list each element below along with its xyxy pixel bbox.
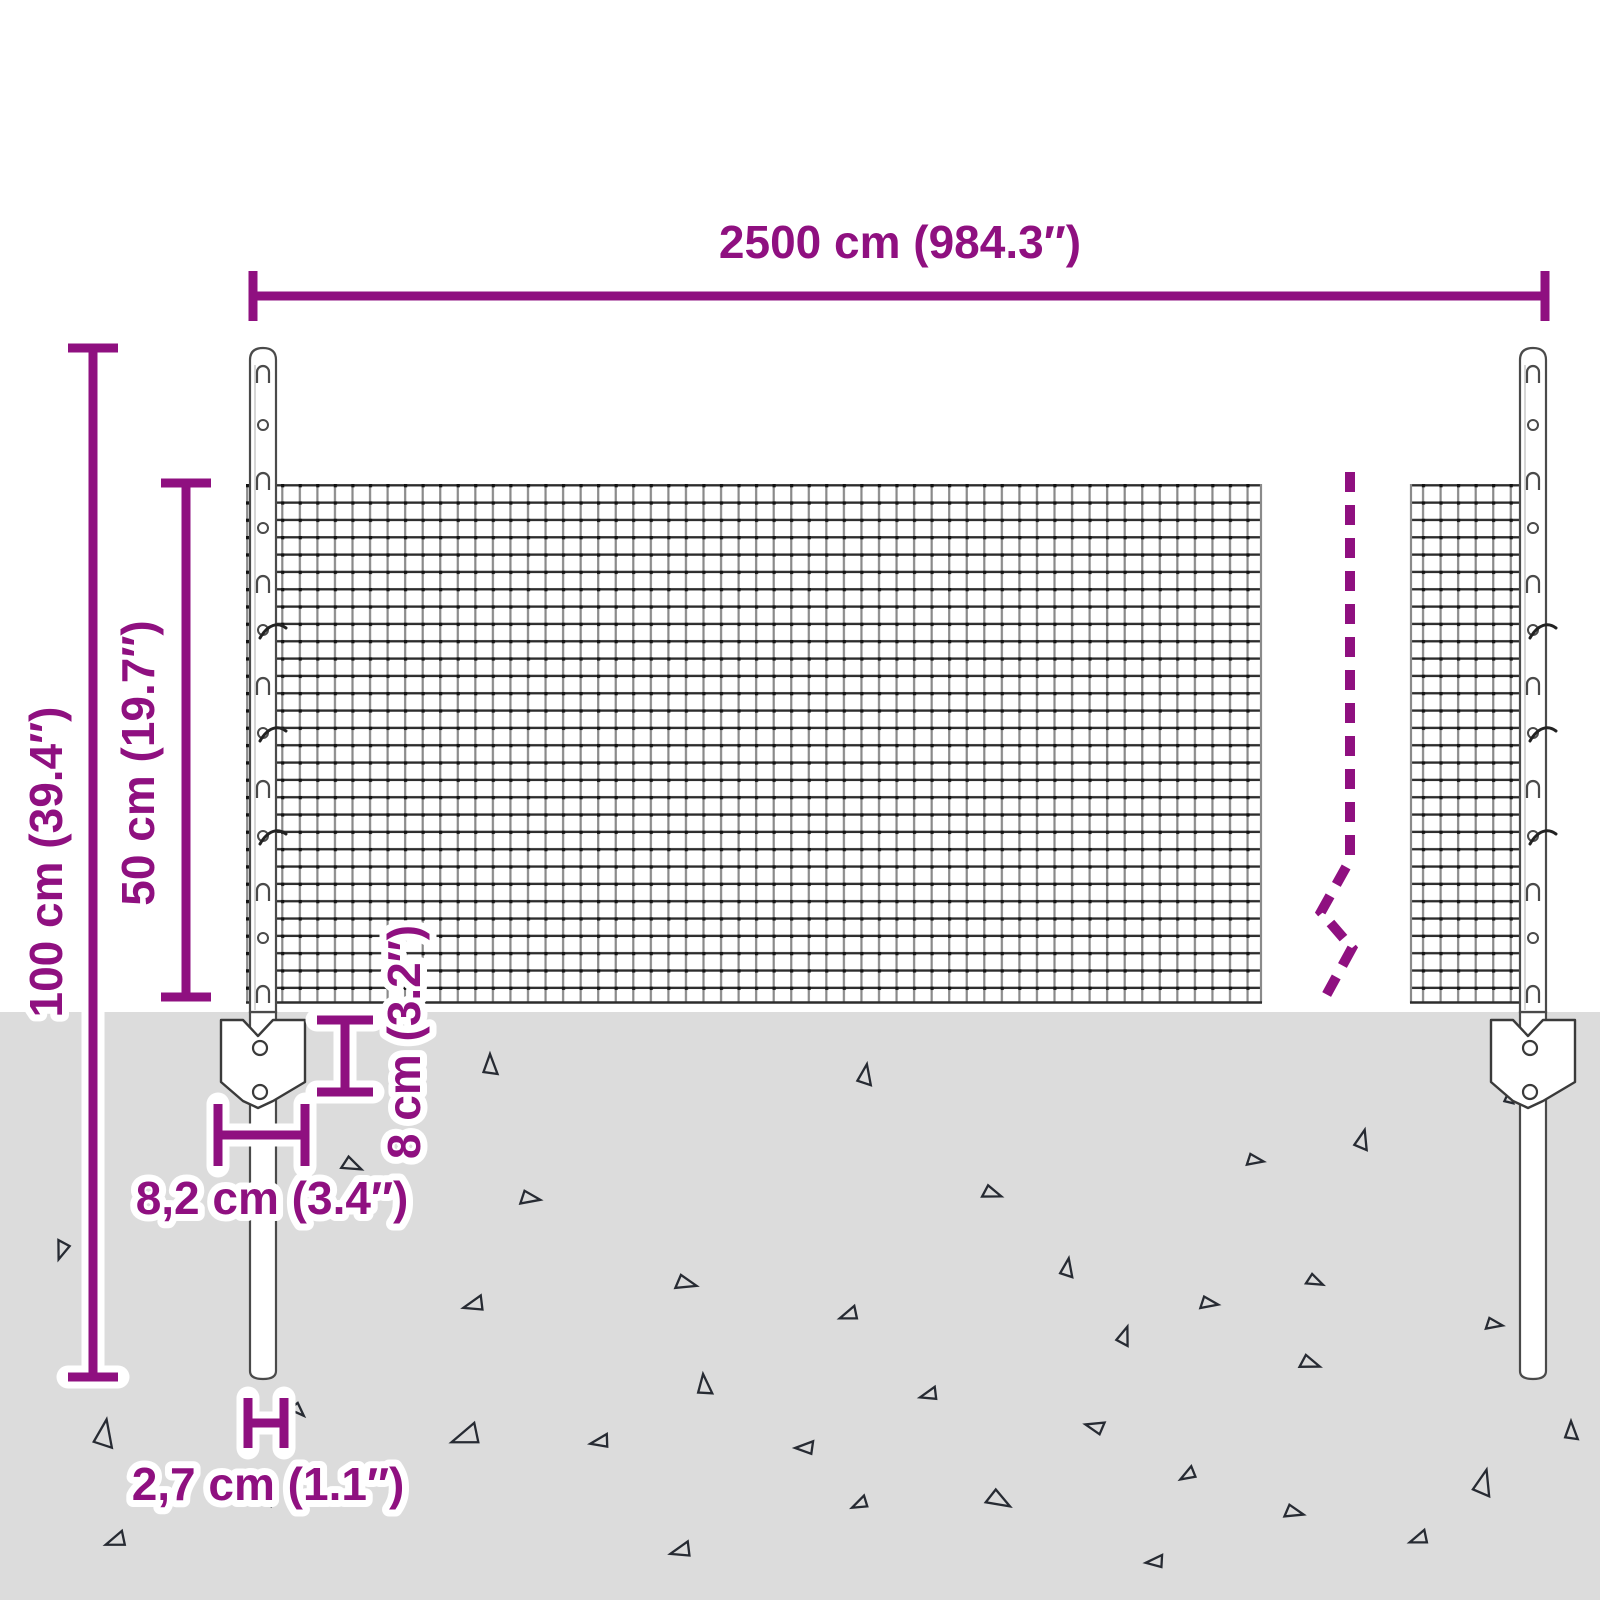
post-width-label: 2,7 cm (1.1″) <box>132 1458 405 1510</box>
post-hole <box>258 933 268 943</box>
dimension-mesh-height: 50 cm (19.7″) <box>112 483 211 997</box>
post-hole <box>1528 933 1538 943</box>
post-hole <box>258 523 268 533</box>
anchor-plate-width-label: 8,2 cm (3.4″) <box>136 1172 409 1224</box>
total-width-label: 2500 cm (984.3″) <box>719 216 1081 268</box>
mesh-height-label: 50 cm (19.7″) <box>112 620 164 905</box>
panel-break-dashed-line <box>1321 472 1352 1003</box>
diagram-canvas: 2500 cm (984.3″) 100 cm (39.4″) 50 cm (1… <box>0 0 1600 1600</box>
post-right <box>1520 348 1546 1012</box>
anchor-depth-label: 8 cm (3.2″) <box>378 925 430 1159</box>
dimension-total-width: 2500 cm (984.3″) <box>253 216 1545 321</box>
ground-soil <box>0 1012 1600 1600</box>
post-hole <box>1528 420 1538 430</box>
post-hole <box>258 420 268 430</box>
total-height-label: 100 cm (39.4″) <box>20 707 72 1018</box>
post-hole <box>1528 523 1538 533</box>
post-left <box>250 348 276 1012</box>
fence-dimension-diagram: 2500 cm (984.3″) 100 cm (39.4″) 50 cm (1… <box>0 0 1600 1600</box>
